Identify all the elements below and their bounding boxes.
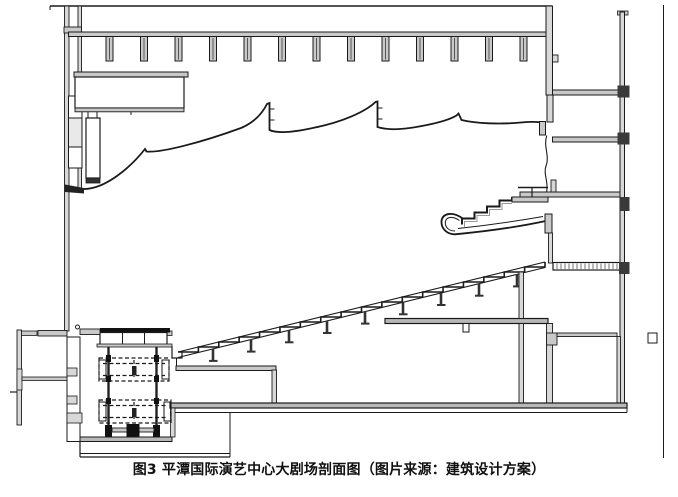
raked-seating — [166, 262, 545, 370]
fire-curtain — [86, 118, 100, 183]
figure-caption: 图3 平潭国际演艺中心大剧场剖面图（图片来源：建筑设计方案） — [0, 459, 678, 479]
fly-tower-roof — [69, 32, 549, 61]
section-drawing — [0, 0, 678, 458]
pit-and-side-stage — [10, 325, 100, 442]
acoustic-ceiling — [84, 102, 547, 193]
stage-left-wall — [64, 6, 84, 331]
fly-gallery — [74, 72, 188, 118]
balcony — [441, 197, 552, 263]
right-wing — [518, 6, 630, 403]
figure-page: 图3 平潭国际演艺中心大剧场剖面图（图片来源：建筑设计方案） — [0, 0, 678, 497]
